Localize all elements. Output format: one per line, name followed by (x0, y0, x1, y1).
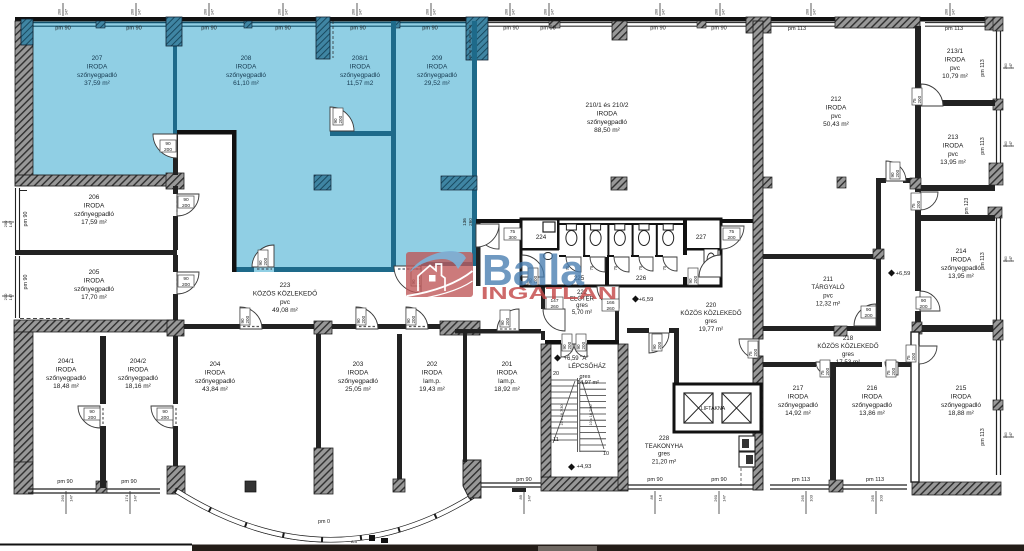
svg-text:147: 147 (527, 494, 532, 501)
svg-text:pm 113: pm 113 (980, 428, 986, 446)
svg-text:147: 147 (285, 9, 289, 15)
svg-text:213/1: 213/1 (947, 48, 964, 55)
svg-text:61,10 m²: 61,10 m² (233, 80, 259, 87)
svg-text:211: 211 (823, 276, 833, 283)
svg-text:pm 113: pm 113 (792, 477, 810, 483)
svg-text:IRODA: IRODA (422, 369, 443, 376)
svg-text:szőnyegpadló: szőnyegpadló (77, 72, 117, 79)
svg-text:260: 260 (945, 9, 949, 15)
svg-text:szőnyegpadló: szőnyegpadló (941, 402, 981, 409)
svg-text:szőnyegpadló: szőnyegpadló (340, 72, 380, 79)
svg-text:pm 113: pm 113 (866, 477, 884, 483)
svg-text:10,79 m²: 10,79 m² (942, 73, 968, 80)
svg-text:szőnyegpadló: szőnyegpadló (118, 375, 158, 382)
svg-text:11: 11 (553, 437, 559, 443)
svg-text:pvc: pvc (948, 151, 959, 158)
svg-text:114: 114 (658, 494, 663, 501)
svg-text:lam.p.: lam.p. (423, 378, 441, 385)
svg-text:szőnyegpadló: szőnyegpadló (778, 402, 818, 409)
svg-text:147: 147 (662, 9, 666, 15)
svg-text:szőnyegpadló: szőnyegpadló (852, 402, 892, 409)
svg-text:200: 200 (891, 367, 896, 375)
svg-text:90: 90 (866, 307, 872, 313)
svg-text:14,92 m²: 14,92 m² (785, 410, 811, 417)
svg-text:200: 200 (919, 304, 927, 310)
svg-text:218: 218 (843, 335, 854, 342)
svg-text:200: 200 (361, 315, 366, 323)
svg-text:IRODA: IRODA (348, 369, 369, 376)
svg-text:88,50 m²: 88,50 m² (594, 127, 620, 134)
svg-text:19,77 m²: 19,77 m² (699, 326, 723, 333)
svg-text:49,08 m²: 49,08 m² (272, 307, 298, 314)
svg-text:215: 215 (956, 385, 967, 392)
svg-text:18,92 m²: 18,92 m² (494, 386, 520, 393)
svg-text:147: 147 (8, 220, 13, 227)
svg-text:200: 200 (164, 147, 172, 153)
svg-text:gres: gres (842, 351, 854, 358)
svg-text:200: 200 (917, 95, 922, 103)
svg-text:pm 90: pm 90 (57, 479, 73, 485)
svg-text:210/1 és 210/2: 210/1 és 210/2 (585, 102, 628, 109)
svg-text:pm 113: pm 113 (788, 26, 806, 32)
svg-text:pm 90: pm 90 (126, 26, 142, 32)
svg-text:90: 90 (183, 197, 189, 203)
svg-text:pm 90: pm 90 (540, 26, 556, 32)
svg-text:200: 200 (916, 200, 921, 208)
svg-text:10: 10 (603, 451, 609, 457)
svg-text:212: 212 (831, 96, 842, 103)
svg-text:200: 200 (581, 341, 586, 349)
svg-text:IRODA: IRODA (236, 63, 257, 70)
svg-text:147: 147 (952, 9, 956, 15)
svg-text:pm 90: pm 90 (650, 26, 666, 32)
svg-text:pm 90: pm 90 (516, 477, 532, 483)
svg-text:89: 89 (518, 494, 523, 499)
svg-text:TÁRGYALÓ: TÁRGYALÓ (811, 284, 844, 291)
svg-text:pm 113: pm 113 (980, 59, 986, 77)
svg-text:pm 123: pm 123 (964, 197, 970, 214)
svg-text:260: 260 (715, 9, 719, 15)
svg-text:pm 0: pm 0 (318, 519, 330, 525)
svg-text:200: 200 (182, 203, 190, 209)
svg-text:147: 147 (1009, 141, 1013, 147)
svg-text:pm 90: pm 90 (711, 26, 727, 32)
svg-text:75: 75 (638, 265, 643, 270)
svg-text:205: 205 (89, 269, 100, 276)
svg-text:szőnyegpadló: szőnyegpadló (417, 72, 457, 79)
svg-text:206: 206 (89, 194, 100, 201)
svg-text:147: 147 (433, 9, 437, 15)
svg-text:86: 86 (649, 494, 654, 499)
svg-text:201: 201 (502, 361, 513, 368)
svg-text:260: 260 (1004, 63, 1008, 69)
svg-text:KÖZÖS KÖZLEKEDŐ: KÖZÖS KÖZLEKEDŐ (817, 343, 878, 350)
svg-text:147: 147 (359, 9, 363, 15)
svg-text:200: 200 (727, 235, 735, 241)
svg-text:147: 147 (813, 9, 817, 15)
svg-text:pvc: pvc (280, 299, 291, 306)
svg-text:75: 75 (729, 229, 735, 235)
svg-text:szőnyegpadló: szőnyegpadló (226, 72, 266, 79)
svg-text:IRODA: IRODA (862, 393, 883, 400)
svg-text:17,59 m²: 17,59 m² (81, 219, 107, 226)
svg-text:220: 220 (706, 302, 717, 309)
svg-text:90: 90 (165, 141, 171, 147)
svg-text:147: 147 (8, 293, 13, 300)
svg-text:147: 147 (1009, 256, 1013, 262)
svg-text:A-5: A-5 (351, 539, 358, 544)
svg-text:21,20 m²: 21,20 m² (652, 458, 676, 465)
svg-text:147: 147 (211, 9, 215, 15)
svg-text:pm 90: pm 90 (647, 477, 663, 483)
svg-text:260: 260 (1004, 432, 1008, 438)
svg-text:75: 75 (589, 265, 594, 270)
svg-text:260: 260 (606, 306, 614, 312)
svg-text:lam.p.: lam.p. (498, 378, 516, 385)
svg-text:szőnyegpadló: szőnyegpadló (338, 378, 378, 385)
svg-text:208/1: 208/1 (352, 55, 369, 62)
svg-text:szőnyegpadló: szőnyegpadló (74, 211, 114, 218)
svg-text:147: 147 (722, 9, 726, 15)
svg-text:szőnyegpadló: szőnyegpadló (587, 119, 627, 126)
svg-text:200: 200 (911, 352, 916, 360)
svg-text:pm 90: pm 90 (275, 26, 291, 32)
svg-text:13,95 m²: 13,95 m² (948, 273, 974, 280)
svg-text:90: 90 (183, 276, 189, 282)
svg-text:200: 200 (182, 282, 190, 288)
svg-text:IRODA: IRODA (84, 277, 105, 284)
svg-text:90: 90 (89, 409, 95, 415)
svg-text:pm 113: pm 113 (980, 137, 986, 155)
svg-text:20: 20 (553, 371, 559, 377)
svg-text:+4,93: +4,93 (577, 464, 592, 470)
svg-text:43,84 m²: 43,84 m² (202, 386, 228, 393)
svg-text:pm 90: pm 90 (503, 26, 519, 32)
svg-text:200: 200 (825, 367, 830, 375)
svg-text:208: 208 (241, 55, 252, 62)
svg-text:17,53 m²: 17,53 m² (836, 359, 860, 366)
svg-text:200: 200 (567, 341, 572, 349)
svg-text:260: 260 (505, 9, 509, 15)
svg-text:13,95 m²: 13,95 m² (940, 159, 966, 166)
svg-text:260: 260 (1004, 256, 1008, 262)
svg-text:5,70 m²: 5,70 m² (572, 310, 592, 316)
svg-text:18,16 m²: 18,16 m² (125, 383, 151, 390)
svg-text:200: 200 (245, 315, 250, 323)
svg-text:226: 226 (636, 275, 647, 282)
svg-text:szőnyegpadló: szőnyegpadló (195, 378, 235, 385)
svg-text:200: 200 (411, 315, 416, 323)
svg-text:szőnyegpadló: szőnyegpadló (46, 375, 86, 382)
svg-text:207: 207 (92, 55, 103, 62)
svg-text:75: 75 (510, 229, 516, 235)
svg-text:227: 227 (696, 234, 707, 241)
svg-text:IRODA: IRODA (597, 110, 618, 117)
svg-text:TEAKONYHA: TEAKONYHA (645, 443, 684, 450)
svg-text:17,70 m²: 17,70 m² (81, 294, 107, 301)
svg-text:+6,59 "A": +6,59 "A" (563, 356, 588, 362)
svg-text:265: 265 (870, 494, 875, 501)
svg-text:IRODA: IRODA (826, 104, 847, 111)
svg-text:pm 90: pm 90 (121, 479, 137, 485)
svg-text:103: 103 (809, 494, 814, 501)
svg-text:IRODA: IRODA (497, 369, 518, 376)
svg-text:IRODA: IRODA (943, 142, 964, 149)
svg-text:147: 147 (65, 9, 69, 15)
svg-text:200: 200 (88, 415, 96, 421)
svg-text:pvc: pvc (950, 65, 961, 72)
svg-text:260: 260 (426, 9, 430, 15)
svg-text:75: 75 (662, 265, 667, 270)
svg-text:19,43 m²: 19,43 m² (419, 386, 445, 393)
svg-text:13,86 m²: 13,86 m² (859, 410, 885, 417)
svg-text:200: 200 (338, 115, 343, 123)
svg-text:147: 147 (69, 494, 74, 501)
svg-text:147: 147 (138, 9, 142, 15)
svg-text:29,52 m²: 29,52 m² (424, 80, 450, 87)
svg-text:pm 90: pm 90 (422, 26, 438, 32)
svg-text:LÉPCSŐHÁZ: LÉPCSŐHÁZ (568, 363, 606, 370)
svg-text:IRODA: IRODA (87, 63, 108, 70)
svg-text:204: 204 (210, 361, 221, 368)
svg-text:260: 260 (131, 9, 135, 15)
svg-text:pm 90: pm 90 (55, 26, 71, 32)
svg-text:90: 90 (162, 409, 168, 415)
svg-text:pm 113: pm 113 (945, 26, 963, 32)
svg-text:260: 260 (550, 304, 558, 310)
svg-text:50,43 m²: 50,43 m² (823, 121, 849, 128)
svg-text:IRODA: IRODA (350, 63, 371, 70)
svg-text:260: 260 (58, 9, 62, 15)
svg-text:147: 147 (1009, 63, 1013, 69)
svg-text:147: 147 (133, 494, 138, 501)
svg-text:IRODA: IRODA (84, 202, 105, 209)
svg-text:gres: gres (658, 451, 670, 458)
svg-text:200: 200 (161, 415, 169, 421)
svg-text:204/2: 204/2 (130, 358, 147, 365)
svg-text:75: 75 (613, 265, 618, 270)
svg-text:+6,59: +6,59 (639, 297, 654, 303)
svg-text:KÖZÖS KÖZLEKEDŐ: KÖZÖS KÖZLEKEDŐ (253, 288, 317, 297)
svg-text:IRODA: IRODA (427, 63, 448, 70)
svg-text:228: 228 (659, 435, 670, 442)
svg-text:265: 265 (800, 494, 805, 501)
svg-text:pm 90: pm 90 (23, 212, 29, 227)
svg-text:260: 260 (278, 9, 282, 15)
svg-text:90: 90 (921, 298, 927, 304)
svg-text:pvc: pvc (831, 113, 842, 120)
svg-text:260: 260 (352, 9, 356, 15)
svg-text:szőnyegpadló: szőnyegpadló (941, 265, 981, 272)
svg-text:pm 113: pm 113 (980, 252, 986, 270)
svg-text:IRODA: IRODA (945, 56, 966, 63)
svg-text:INGATLAN: INGATLAN (481, 283, 617, 303)
svg-text:+6,59: +6,59 (896, 271, 911, 277)
svg-text:gres: gres (576, 303, 588, 309)
svg-text:260: 260 (655, 9, 659, 15)
svg-text:14,97 m²: 14,97 m² (577, 380, 599, 386)
svg-text:18,48 m²: 18,48 m² (53, 383, 79, 390)
svg-text:147: 147 (722, 494, 727, 501)
svg-text:37,59 m²: 37,59 m² (84, 80, 110, 87)
svg-text:11,57 m2: 11,57 m2 (347, 80, 374, 87)
svg-text:25,05 m²: 25,05 m² (345, 386, 371, 393)
svg-text:103: 103 (879, 494, 884, 501)
svg-text:200: 200 (895, 169, 900, 177)
svg-text:IRODA: IRODA (56, 366, 77, 373)
svg-text:12,32 m²: 12,32 m² (816, 301, 840, 308)
svg-text:203: 203 (353, 361, 364, 368)
svg-text:200: 200 (753, 348, 758, 356)
svg-text:IRODA: IRODA (205, 369, 226, 376)
svg-text:200: 200 (693, 275, 698, 283)
svg-text:204/1: 204/1 (58, 358, 75, 365)
svg-text:174: 174 (124, 494, 129, 501)
svg-text:200: 200 (505, 317, 510, 325)
svg-text:gres: gres (705, 318, 717, 325)
svg-text:147: 147 (1009, 432, 1013, 438)
svg-text:IRODA: IRODA (951, 256, 972, 263)
svg-text:136: 136 (462, 218, 467, 226)
svg-text:217: 217 (793, 385, 804, 392)
svg-text:IRODA: IRODA (951, 393, 972, 400)
svg-text:147: 147 (551, 9, 555, 15)
svg-text:200: 200 (657, 341, 662, 349)
svg-text:szőnyegpadló: szőnyegpadló (74, 286, 114, 293)
svg-text:pm 90: pm 90 (201, 26, 217, 32)
svg-text:260: 260 (468, 218, 473, 226)
svg-text:pm 90: pm 90 (23, 275, 29, 290)
svg-text:260: 260 (204, 9, 208, 15)
svg-text:147: 147 (512, 9, 516, 15)
svg-text:260: 260 (1004, 141, 1008, 147)
svg-text:10 x 16,7/30: 10 x 16,7/30 (589, 405, 593, 426)
svg-text:260: 260 (713, 494, 718, 501)
svg-text:202: 202 (427, 361, 438, 368)
svg-text:10 x 16,7/30: 10 x 16,7/30 (560, 405, 564, 426)
svg-text:216: 216 (867, 385, 878, 392)
svg-text:IRODA: IRODA (128, 366, 149, 373)
svg-text:18,88 m²: 18,88 m² (948, 410, 974, 417)
svg-text:260: 260 (60, 494, 65, 501)
svg-text:LIFTAKNA: LIFTAKNA (701, 406, 726, 412)
svg-text:300: 300 (508, 235, 516, 241)
svg-text:213: 213 (948, 134, 959, 141)
svg-text:209: 209 (432, 55, 443, 62)
svg-text:224: 224 (536, 234, 547, 241)
svg-text:260: 260 (544, 9, 548, 15)
svg-text:200: 200 (864, 313, 872, 319)
svg-text:214: 214 (956, 248, 967, 255)
svg-text:260: 260 (806, 9, 810, 15)
svg-text:IRODA: IRODA (788, 393, 809, 400)
svg-text:pvc: pvc (823, 292, 833, 299)
svg-text:KÖZÖS KÖZLEKEDŐ: KÖZÖS KÖZLEKEDŐ (680, 310, 741, 317)
svg-text:223: 223 (280, 282, 291, 289)
svg-text:pm 90: pm 90 (350, 26, 366, 32)
svg-text:200: 200 (263, 257, 268, 265)
svg-text:pm 90: pm 90 (711, 477, 727, 483)
